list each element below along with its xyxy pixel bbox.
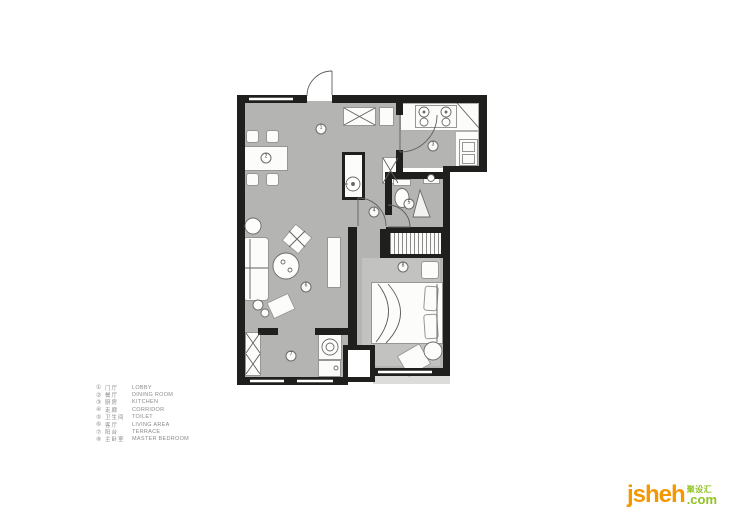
legend-num: ⑥ (96, 421, 105, 428)
legend-en: KITCHEN (132, 399, 158, 405)
wardrobe (390, 233, 441, 254)
legend-en: CORRIDOR (132, 407, 164, 413)
legend-num: ④ (96, 406, 105, 413)
legend-en: LOBBY (132, 385, 152, 391)
legend-en: TERRACE (132, 429, 160, 435)
site-logo: jsheh 聚设汇 .com (627, 484, 717, 506)
pillow (423, 314, 439, 340)
balcony-floor (348, 350, 370, 377)
logo-right-block: 聚设汇 .com (687, 486, 717, 506)
logo-wordmark: jsheh (627, 484, 685, 506)
terrace-cabinet (245, 332, 261, 376)
sink-basin (462, 142, 475, 152)
shoe-cabinet (343, 107, 376, 126)
legend: ① 门厅 LOBBY ② 餐厅 DINING ROOM ③ 厨房 KITCHEN… (96, 384, 189, 443)
tv-cabinet (327, 237, 341, 288)
sink-basin (462, 154, 475, 164)
wall-right (443, 166, 450, 372)
legend-en: MASTER BEDROOM (132, 436, 189, 442)
window-dining (249, 97, 293, 101)
window-bedroom (378, 370, 432, 374)
legend-en: DINING ROOM (132, 392, 173, 398)
wall-living-bedroom (348, 227, 357, 348)
washing-machine (318, 334, 342, 360)
room-marker-terrace: 7 (286, 351, 297, 362)
wall-laundry-nook (315, 328, 348, 335)
dining-chair (266, 173, 279, 186)
legend-row-master-bedroom: ⑧ 主卧室 MASTER BEDROOM (96, 436, 189, 443)
wall-terrace-stub (258, 328, 278, 335)
dining-chair (266, 130, 279, 143)
legend-num: ② (96, 392, 105, 399)
dining-chair (246, 130, 259, 143)
wall-left (237, 95, 245, 385)
legend-num: ③ (96, 399, 105, 406)
entry-cabinet (379, 107, 394, 126)
wall-toilet-left (385, 179, 392, 215)
legend-num: ⑤ (96, 414, 105, 421)
legend-num: ⑧ (96, 436, 105, 443)
room-marker-kitchen: 3 (428, 141, 439, 152)
terrace-lower-cabinet (318, 360, 341, 377)
dining-chair (246, 173, 259, 186)
logo-domain-suffix: .com (687, 494, 717, 506)
wall-kitchen-bottom (445, 166, 487, 172)
bedroom-outer-ledge (373, 376, 450, 384)
stove (415, 105, 457, 128)
window-terrace-left (250, 379, 284, 383)
entry-door-arc (307, 71, 332, 96)
legend-en: LIVING AREA (132, 422, 170, 428)
wall-toilet-top (385, 172, 445, 179)
legend-cn: 主卧室 (105, 435, 132, 443)
wall-kitchen-door-jamb (396, 103, 403, 115)
wall-top-right (332, 95, 487, 103)
room-marker-master-bedroom: 8 (398, 262, 409, 273)
nightstand (421, 261, 439, 279)
legend-num: ① (96, 384, 105, 391)
room-marker-dining-room: 2 (261, 153, 272, 164)
vanity-unit (342, 152, 365, 200)
legend-num: ⑦ (96, 429, 105, 436)
floor-plan-page: 1 2 3 4 5 6 7 8 ① 门厅 LOBBY ② 餐厅 DINING R… (0, 0, 730, 516)
wall-kitchen-right (479, 95, 487, 172)
sofa (243, 237, 269, 301)
pillow (423, 286, 439, 312)
legend-en: TOILET (132, 414, 153, 420)
room-marker-living-area: 6 (301, 282, 312, 293)
room-marker-toilet: 5 (404, 199, 415, 210)
room-marker-corridor: 4 (369, 207, 380, 218)
wc-tank (393, 179, 411, 186)
window-terrace-right (297, 379, 333, 383)
room-marker-lobby: 1 (316, 124, 327, 135)
